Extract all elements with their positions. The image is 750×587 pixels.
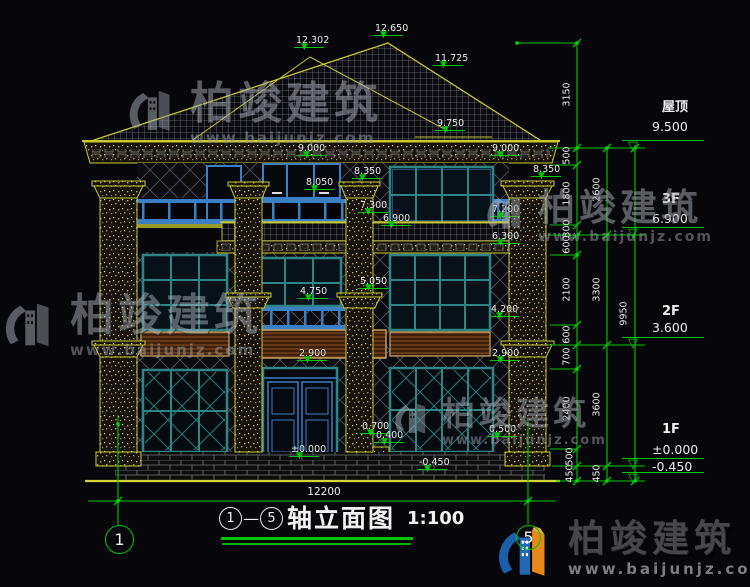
eave-cornice bbox=[82, 141, 560, 163]
title-text: 轴立面图 bbox=[287, 506, 395, 531]
elevation-drawing bbox=[0, 0, 750, 587]
title-dash: — bbox=[243, 509, 259, 528]
title-axis-end-bubble: 5 bbox=[260, 507, 283, 530]
title-underline bbox=[221, 537, 413, 540]
roof bbox=[88, 43, 543, 142]
axis-bubble-1: 1 bbox=[105, 525, 134, 554]
title-scale: 1:100 bbox=[407, 508, 464, 529]
drawing-title: 1 — 5 轴立面图 1:100 bbox=[219, 506, 464, 531]
brand-name: 柏竣建筑 bbox=[568, 520, 750, 557]
axis-bubble-5: 5 bbox=[516, 525, 541, 550]
brick-base bbox=[115, 452, 545, 481]
title-axis-start-bubble: 1 bbox=[219, 507, 242, 530]
cad-elevation-screenshot: 12200 1 — 5 轴立面图 1:100 柏竣建筑 www.baijunjz… bbox=[0, 0, 750, 587]
brand-url: www.baijunjz.com bbox=[568, 560, 750, 578]
wood-slat-bands bbox=[141, 330, 490, 358]
bottom-dimension-label: 12200 bbox=[296, 486, 352, 498]
title-underline-2 bbox=[222, 543, 411, 545]
